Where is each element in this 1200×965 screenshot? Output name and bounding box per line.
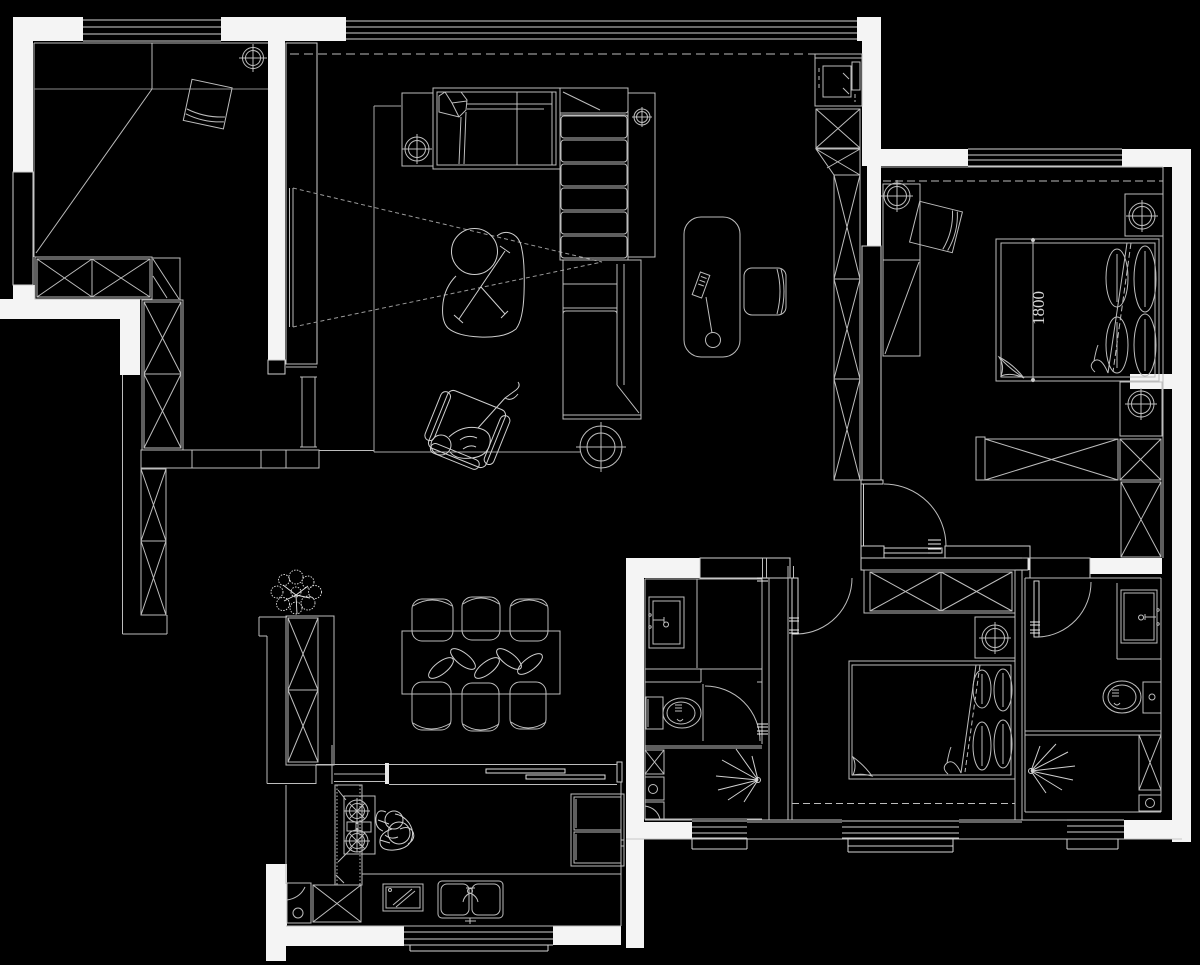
svg-text:1800: 1800 [1029,291,1048,325]
